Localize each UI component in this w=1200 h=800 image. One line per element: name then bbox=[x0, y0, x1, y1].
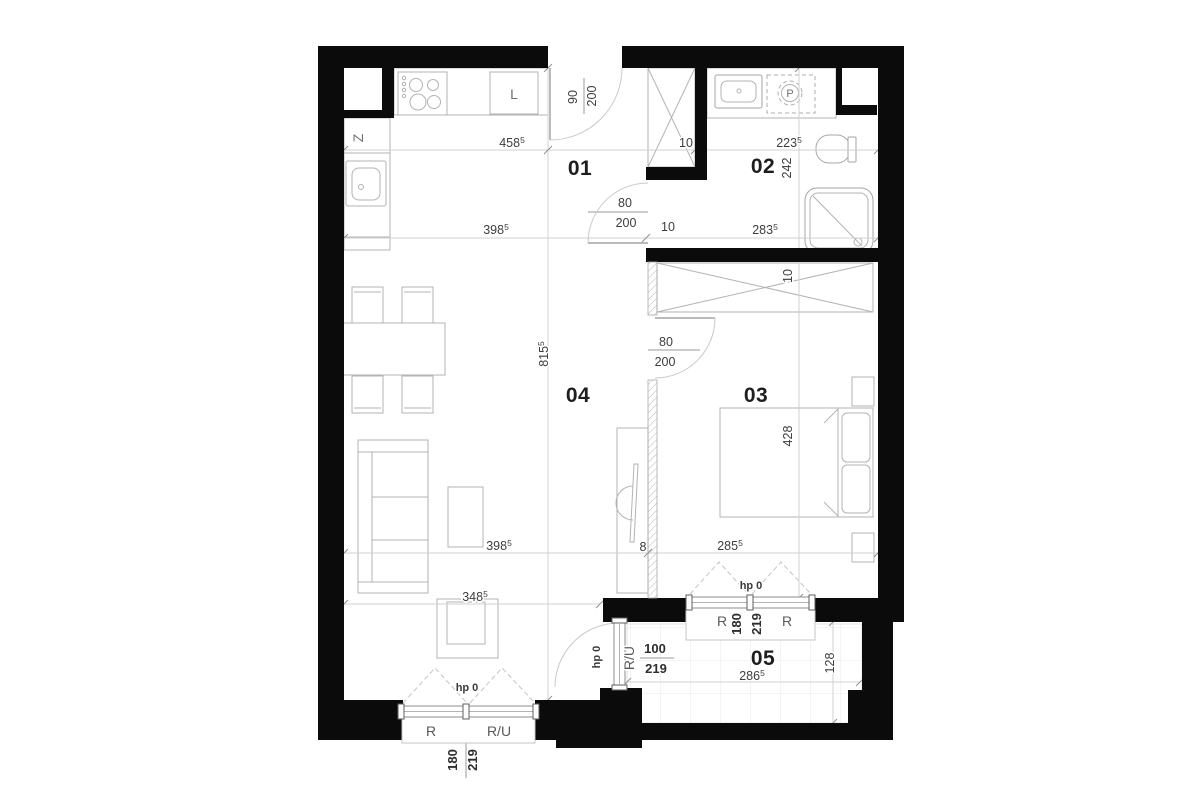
dim-partition: 8 bbox=[640, 540, 647, 554]
bedroom-door-height: 200 bbox=[655, 355, 676, 369]
chair-icon bbox=[402, 376, 433, 413]
balcony-door-parapet: hp 0 bbox=[591, 646, 603, 669]
balcony-south-wall bbox=[642, 723, 848, 740]
dining-table-icon bbox=[343, 323, 445, 375]
floor-plan: 01 02 03 04 05 L Z P 4585 3985 2235 2835… bbox=[0, 0, 1200, 800]
wall-left bbox=[318, 46, 344, 740]
chair-icon bbox=[402, 287, 433, 324]
balcony-west-wall bbox=[600, 688, 642, 748]
balcony-door-width: 100 bbox=[644, 641, 666, 656]
living-window-parapet: hp 0 bbox=[456, 682, 479, 694]
nightstand-icon bbox=[852, 533, 874, 562]
bedroom-window-width: 180 bbox=[729, 613, 744, 635]
wall-bottom-mid bbox=[556, 712, 604, 748]
bedroom-door-width: 80 bbox=[659, 335, 673, 349]
chair-icon bbox=[352, 287, 383, 324]
nightstand-icon bbox=[852, 377, 874, 406]
dim-wall-hall: 10 bbox=[679, 136, 693, 150]
bathroom-door-width: 80 bbox=[618, 196, 632, 210]
toilet-icon bbox=[816, 135, 856, 163]
balcony-door-height: 219 bbox=[645, 661, 667, 676]
room-label-hall: 01 bbox=[568, 157, 592, 180]
bedroom-north-wall bbox=[646, 248, 878, 262]
shaft-wall bbox=[344, 110, 394, 118]
kitchen-sink-icon bbox=[346, 161, 386, 206]
living-window-left-type: R bbox=[426, 723, 436, 739]
bathroom-door-height: 200 bbox=[616, 216, 637, 230]
floor-plan-page: 01 02 03 04 05 L Z P 4585 3985 2235 2835… bbox=[0, 0, 1200, 800]
niche-wall bbox=[836, 68, 842, 105]
washing-machine-label: P bbox=[786, 88, 793, 100]
shower-icon bbox=[805, 188, 873, 253]
chair-icon bbox=[352, 376, 383, 413]
coffee-table-icon bbox=[448, 487, 483, 547]
wall-top-right bbox=[622, 46, 904, 68]
tv-cabinet-icon bbox=[616, 428, 648, 593]
balcony-east-wall bbox=[848, 690, 893, 740]
dim-bedroom-depth: 428 bbox=[781, 426, 795, 447]
room-label-bedroom: 03 bbox=[744, 384, 768, 407]
armchair-icon bbox=[437, 599, 498, 658]
washbasin-icon bbox=[715, 75, 762, 108]
bedroom-window-right-type: R bbox=[782, 613, 792, 629]
bedroom-south-wall bbox=[813, 598, 878, 622]
niche-wall bbox=[836, 105, 877, 115]
wall-bottom-left bbox=[318, 700, 403, 740]
dim-wall-bedroom: 10 bbox=[781, 269, 795, 283]
fridge-label: L bbox=[510, 86, 518, 102]
hall-wardrobe-icon bbox=[648, 68, 695, 167]
wall-right bbox=[878, 46, 904, 622]
dim-bath-depth: 242 bbox=[780, 158, 794, 179]
hall-wardrobe-wall bbox=[646, 167, 695, 180]
sofa-icon bbox=[358, 440, 428, 593]
bedroom-window-height: 219 bbox=[749, 613, 764, 635]
bed-icon bbox=[720, 408, 873, 517]
kitchen-unit-label: Z bbox=[350, 133, 366, 142]
balcony-east-wall bbox=[862, 622, 893, 690]
dim-balcony-depth: 128 bbox=[823, 653, 837, 674]
balcony-door-type: R/U bbox=[621, 646, 637, 670]
bedroom-wardrobe-icon bbox=[657, 263, 873, 312]
room-label-living: 04 bbox=[566, 384, 590, 407]
entrance-door-width: 90 bbox=[566, 90, 580, 104]
room-label-bathroom: 02 bbox=[751, 155, 775, 178]
living-window-right-type: R/U bbox=[487, 723, 511, 739]
living-window-height: 219 bbox=[465, 749, 480, 771]
bedroom-window-left-type: R bbox=[717, 613, 727, 629]
bedroom-window-parapet: hp 0 bbox=[740, 580, 763, 592]
partition-hatched bbox=[648, 380, 657, 598]
entrance-door-height: 200 bbox=[585, 86, 599, 107]
wall-top-left bbox=[318, 46, 548, 68]
living-window-width: 180 bbox=[445, 749, 460, 771]
dim-wall-bath: 10 bbox=[661, 220, 675, 234]
room-label-balcony: 05 bbox=[751, 647, 775, 670]
stove-icon bbox=[398, 72, 447, 115]
partition-hatched bbox=[648, 262, 657, 315]
bathroom-west-wall bbox=[695, 68, 707, 180]
